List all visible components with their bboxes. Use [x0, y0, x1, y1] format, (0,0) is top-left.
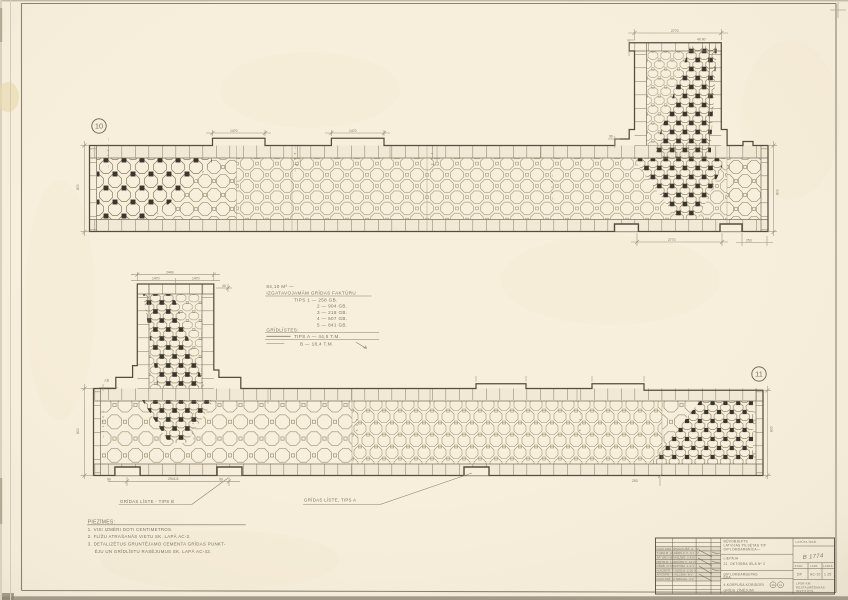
- svg-text:3. DETALIZĒTUS GRUNTĒJAMO CEME: 3. DETALIZĒTUS GRUNTĒJAMO CEMENTA GRĪDAS…: [88, 542, 226, 547]
- svg-text:AC-10: AC-10: [810, 573, 821, 577]
- svg-text:ĒKA: ĒKA: [724, 576, 732, 580]
- svg-text:800: 800: [76, 184, 80, 190]
- svg-text:GRĪDU ZĪMĒJUMI: GRĪDU ZĪMĒJUMI: [724, 589, 755, 593]
- svg-text:2770: 2770: [668, 238, 676, 242]
- svg-text:800: 800: [770, 426, 774, 432]
- svg-text:LIEPĀJA: LIEPĀJA: [724, 557, 740, 561]
- svg-text:TIPS A — 44,5 T.M.: TIPS A — 44,5 T.M.: [294, 334, 340, 339]
- svg-text:2449: 2449: [166, 271, 174, 275]
- svg-text:B — 18,4 T.M.: B — 18,4 T.M.: [300, 341, 334, 346]
- svg-text:STAD.: STAD.: [795, 564, 804, 568]
- svg-text:LAPA: LAPA: [810, 564, 818, 568]
- svg-text:84,10 M² —: 84,10 M² —: [266, 284, 294, 289]
- svg-text:253: 253: [632, 479, 638, 483]
- svg-text:1 25: 1 25: [824, 573, 831, 577]
- svg-text:4.KORPUSA KORIDORI: 4.KORPUSA KORIDORI: [724, 583, 765, 587]
- svg-text:GRĪDAS LĪSTE - TIPS B: GRĪDAS LĪSTE - TIPS B: [120, 499, 174, 504]
- svg-text:10: 10: [95, 122, 103, 131]
- svg-text:1470: 1470: [349, 129, 357, 133]
- svg-text:3 — 218 GB.: 3 — 218 GB.: [317, 310, 347, 315]
- svg-text:PIEZĪMES:: PIEZĪMES:: [88, 518, 115, 525]
- svg-text:2770: 2770: [671, 29, 679, 33]
- svg-text:INSTITŪTS.: INSTITŪTS.: [796, 589, 814, 593]
- svg-text:90: 90: [219, 478, 223, 482]
- svg-text:40: 40: [222, 284, 226, 288]
- svg-text:40 90: 40 90: [697, 38, 706, 42]
- svg-text:LAPAS: LAPAS: [823, 564, 833, 568]
- svg-text:10: 10: [771, 583, 775, 587]
- svg-text:TIPS 1 — 258 GB.: TIPS 1 — 258 GB.: [294, 297, 338, 302]
- svg-text:1470: 1470: [192, 277, 200, 281]
- svg-text:5 — 841 GB.: 5 — 841 GB.: [317, 322, 347, 327]
- svg-text:90: 90: [107, 478, 111, 482]
- svg-text:2. FLĪŽU ATRAŠANĀS VIETU SK. L: 2. FLĪŽU ATRAŠANĀS VIETU SK. LAPĀ AC-2.: [88, 534, 191, 539]
- svg-text:GRĪDLĪSTES:: GRĪDLĪSTES:: [266, 326, 298, 332]
- svg-text:1470: 1470: [230, 129, 238, 133]
- svg-text:1. VISI IZMĒRI DOTI CENTIMETRO: 1. VISI IZMĒRI DOTI CENTIMETROS.: [88, 527, 173, 532]
- svg-text:GRĪDAS LĪSTE, TIPS A: GRĪDAS LĪSTE, TIPS A: [304, 498, 356, 503]
- svg-text:90: 90: [609, 135, 613, 139]
- svg-text:11: 11: [779, 583, 782, 587]
- svg-text:2 — 904 GB.: 2 — 904 GB.: [317, 304, 347, 309]
- svg-text:J.B: J.B: [104, 379, 110, 383]
- svg-text:253: 253: [746, 238, 752, 242]
- svg-text:2944,8: 2944,8: [168, 477, 178, 481]
- svg-text:800: 800: [76, 428, 80, 434]
- svg-text:800: 800: [776, 189, 780, 195]
- svg-text:DIPLOMDARBNĪCA—: DIPLOMDARBNĪCA—: [724, 548, 761, 552]
- svg-text:ĒJU UN GRĪDLĪSTU RASĒJUMUS SK.: ĒJU UN GRĪDLĪSTU RASĒJUMUS SK. LAPĀ AC-4…: [95, 549, 212, 554]
- svg-text:LATŪTA ĪPAŠ.: LATŪTA ĪPAŠ.: [796, 539, 818, 544]
- svg-text:4 — 507 GB.: 4 — 507 GB.: [317, 316, 347, 321]
- svg-text:DP: DP: [797, 573, 803, 577]
- svg-text:21. OKTOBRA IELA Nº 2: 21. OKTOBRA IELA Nº 2: [724, 562, 766, 566]
- svg-text:1470: 1470: [152, 277, 160, 281]
- svg-text:IZGATAVOJAMĀM GRĪDAS FAKTŪRU: IZGATAVOJAMĀM GRĪDAS FAKTŪRU: [266, 290, 356, 296]
- svg-text:11: 11: [755, 370, 763, 379]
